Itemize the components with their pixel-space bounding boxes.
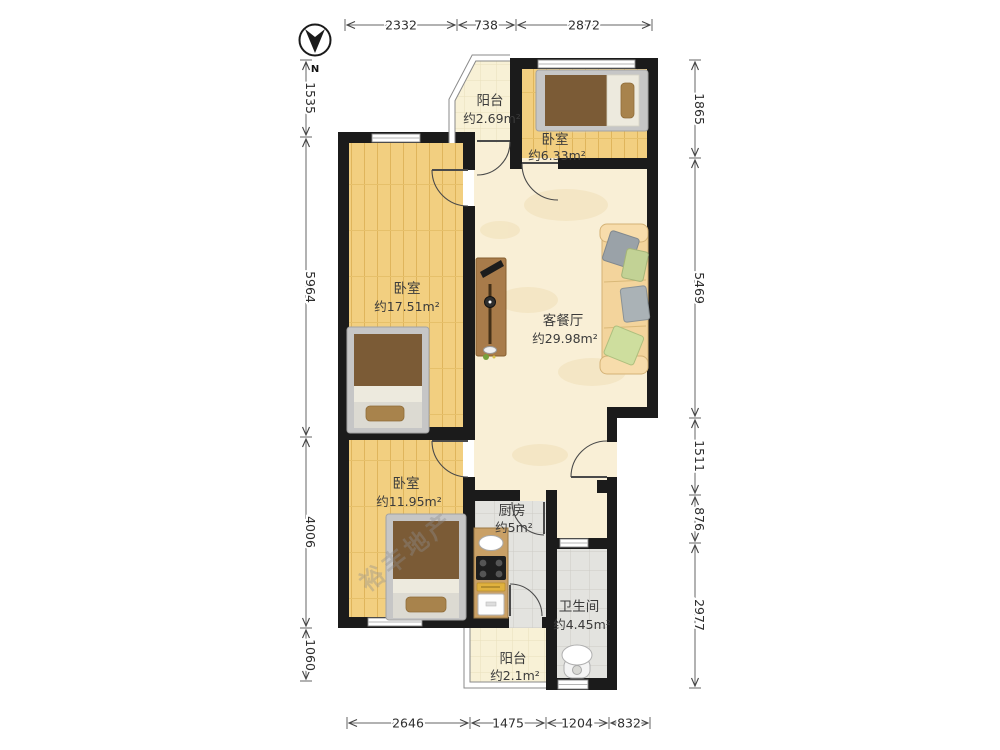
bedroom-top-name: 卧室 <box>542 131 569 148</box>
dim-top-3: 2872 <box>568 18 600 33</box>
bedroom-top-area: 约6.33m² <box>528 148 586 163</box>
dim-right-1: 1865 <box>692 93 707 125</box>
bedroom-left-area: 约17.51m² <box>374 299 439 314</box>
dim-bottom-1: 2646 <box>392 716 424 731</box>
kitchen-counter <box>474 528 508 618</box>
sink-icon <box>479 536 503 551</box>
dim-left-1: 1535 <box>303 82 318 114</box>
dimensions-left: 1535 5964 4006 1060 <box>300 60 318 681</box>
dim-bottom-4: 832 <box>617 716 641 731</box>
bathroom-name: 卫生间 <box>559 599 600 615</box>
floor-plan: 阳台 约2.69m² 卧室 约6.33m² 卧室 约17.51m² 客餐厅 约2… <box>0 0 1000 750</box>
balcony-bottom-name: 阳台 <box>500 651 527 667</box>
dim-bottom-2: 1475 <box>492 716 524 731</box>
north-compass: N <box>300 25 331 76</box>
dim-top-1: 2332 <box>385 18 417 33</box>
kitchen-area: 约5m² <box>495 520 533 535</box>
balcony-top-area: 约2.69m² <box>463 111 521 126</box>
window-bedroom-top <box>538 60 635 68</box>
window-bedroom-left <box>372 134 420 142</box>
bed-top-bedroom <box>536 70 648 131</box>
dimensions-top: 2332 738 2872 <box>345 18 652 33</box>
dim-left-2: 5964 <box>303 271 318 303</box>
bedroom-bottom-name: 卧室 <box>393 475 420 492</box>
bedroom-bottom-area: 约11.95m² <box>376 494 441 509</box>
living-name: 客餐厅 <box>543 312 584 329</box>
dim-left-3: 4006 <box>303 516 318 548</box>
toilet-icon <box>562 645 592 678</box>
kitchen-door-floor <box>509 617 543 628</box>
window-bathroom-bottom <box>558 680 588 689</box>
window-bathroom-top <box>560 539 588 547</box>
floor-plan-page: 阳台 约2.69m² 卧室 约6.33m² 卧室 约17.51m² 客餐厅 约2… <box>0 0 1000 750</box>
stove-icon <box>476 556 506 580</box>
dim-right-5: 2977 <box>692 599 707 631</box>
dim-right-4: 876 <box>692 507 707 531</box>
balcony-bottom-area: 约2.1m² <box>490 668 540 683</box>
dimensions-right: 1865 5469 1511 876 2977 <box>689 60 707 688</box>
balcony-top-name: 阳台 <box>477 93 504 109</box>
tv-cabinet <box>476 258 506 360</box>
north-label: N <box>311 64 319 75</box>
kitchen-name: 厨房 <box>499 503 526 519</box>
dim-left-4: 1060 <box>303 639 318 671</box>
dim-right-3: 1511 <box>692 440 707 472</box>
bed-left-bedroom <box>347 327 429 433</box>
bedroom-left-name: 卧室 <box>394 280 421 297</box>
dimensions-bottom: 2646 1475 1204 832 <box>347 716 650 731</box>
dim-top-2: 738 <box>474 18 498 33</box>
bathroom-area: 约4.45m² <box>553 617 611 632</box>
dim-right-2: 5469 <box>692 272 707 304</box>
sofa <box>600 224 650 374</box>
living-area: 约29.98m² <box>532 331 597 346</box>
dim-bottom-3: 1204 <box>561 716 593 731</box>
